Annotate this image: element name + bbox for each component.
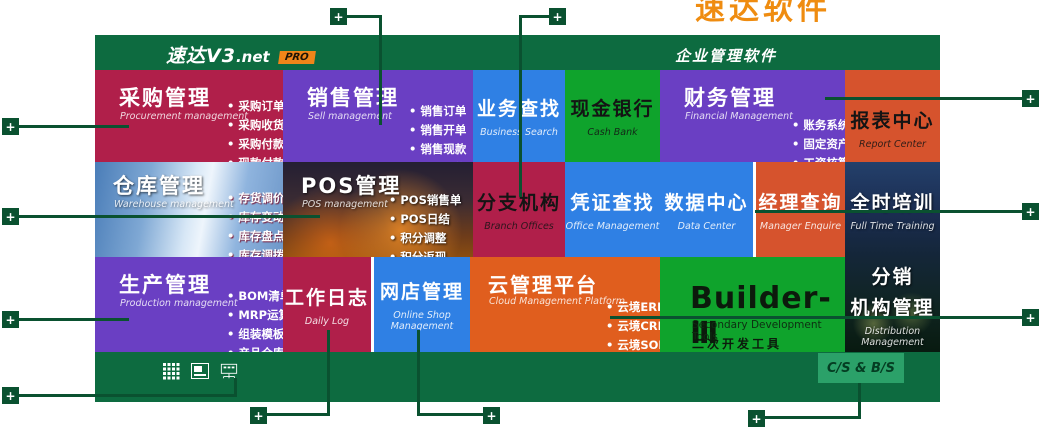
annotation-line (267, 413, 329, 416)
bullet-list: POS销售单 POS日结 积分调整 积分返现 (389, 191, 461, 257)
tile-subtitle: Data Center (678, 221, 736, 232)
tile-title: 生产管理 (119, 269, 211, 299)
bullet-item: 云境SOHO (606, 336, 660, 352)
bullet-item: 库存调拨 (227, 246, 283, 257)
bullet-item: 现款付款 (227, 154, 283, 162)
tile-title: 现金银行 (570, 94, 654, 121)
tile-subtitle: Full Time Training (850, 221, 934, 232)
tile-title: 仓库管理 (113, 170, 205, 200)
plus-marker[interactable]: + (1022, 90, 1039, 107)
plus-marker[interactable]: + (748, 410, 765, 427)
tile-title: 工作日志 (285, 283, 369, 310)
tile-title: 财务管理 (684, 82, 776, 112)
annotation-line (19, 215, 320, 218)
tile-title: POS管理 (301, 170, 401, 200)
app-screenshot: 速达软件 速达V3.netPRO 企业管理软件 采购管理 Procurement… (0, 0, 1039, 447)
annotation-line (610, 316, 1022, 319)
annotation-line (755, 210, 1022, 213)
tile-subtitle: Distribution Management (845, 326, 940, 348)
bullet-item: POS销售单 (389, 191, 461, 210)
bullet-item: 工资核算 (792, 154, 845, 162)
cs-bs-label: C/S & B/S (827, 361, 895, 376)
tile-subtitle: Online Shop Management (374, 310, 470, 332)
tile-subtitle: Warehouse management (114, 199, 234, 210)
tile-sales[interactable]: 销售管理 Sell management 销售订单 销售开单 销售现款 现款销售 (283, 70, 473, 162)
annotation-line (419, 413, 485, 416)
plus-icon: + (552, 11, 562, 23)
plus-icon: + (1025, 93, 1035, 105)
bullet-item: MRP运算 (227, 306, 283, 325)
tile-subtitle: Cash Bank (587, 127, 637, 138)
bullet-item: 积分返现 (389, 248, 461, 257)
plus-marker[interactable]: + (2, 118, 19, 135)
bullet-item: 采购订单 (227, 97, 283, 116)
annotation-line (519, 15, 522, 197)
tile-builder[interactable]: Builder-Ⅲ Secondary Development Tools 二次… (660, 257, 845, 352)
bullet-item: 云境CRM (606, 317, 660, 336)
tile-title-line1: 分销 (871, 262, 913, 289)
tile-subtitle-cn: 二次开发工具 (692, 335, 782, 352)
tile-subtitle: Report Center (859, 139, 926, 150)
bullet-list: 采购订单 采购收货 采购付款 现款付款 (227, 97, 283, 162)
plus-icon: + (253, 410, 263, 422)
annotation-line (765, 416, 860, 419)
logo-suffix: .net (236, 48, 270, 66)
apps-grid-icon[interactable] (162, 362, 180, 380)
product-title: 企业管理软件 (675, 45, 777, 66)
plus-icon: + (5, 211, 15, 223)
annotation-line (825, 97, 1022, 100)
plus-marker[interactable]: + (483, 407, 500, 424)
tile-warehouse[interactable]: 仓库管理 Warehouse management 存货调价 库存变动 库存盘点… (95, 162, 283, 257)
annotation-line (19, 318, 129, 321)
image-window-icon[interactable] (191, 362, 209, 380)
plus-icon: + (5, 121, 15, 133)
bullet-item: 固定资产 (792, 135, 845, 154)
app-logo: 速达V3.netPRO (166, 41, 314, 68)
bullet-list: 销售订单 销售开单 销售现款 现款销售 (409, 102, 466, 162)
plus-marker[interactable]: + (1022, 203, 1039, 220)
tile-subtitle: Office Management (566, 221, 660, 232)
plus-icon: + (751, 413, 761, 425)
plus-icon: + (5, 390, 15, 402)
tile-distribution[interactable]: 分销 机构管理 Distribution Management (845, 257, 940, 352)
plus-marker[interactable]: + (1022, 309, 1039, 326)
pro-badge: PRO (278, 51, 315, 64)
plus-marker[interactable]: + (549, 8, 566, 25)
tile-online-shop[interactable]: 网店管理 Online Shop Management (374, 257, 470, 352)
plus-marker[interactable]: + (2, 311, 19, 328)
bullet-item: 库存盘点 (227, 227, 283, 246)
bullet-item: 采购收货 (227, 116, 283, 135)
tile-title: 云管理平台 (488, 269, 598, 298)
bullet-item: 产品仓库 (227, 344, 283, 352)
tile-report-center[interactable]: 报表中心 Report Center (845, 70, 940, 162)
tile-title: 网店管理 (380, 277, 464, 304)
tile-voucher-search[interactable]: 凭证查找 Office Management (565, 162, 660, 257)
annotation-line (521, 15, 551, 18)
tile-title: 报表中心 (850, 106, 934, 133)
bullet-list: 云境ERP 云境CRM 云境SOHO (606, 298, 660, 352)
annotation-line (417, 330, 420, 416)
tile-title: 采购管理 (119, 82, 211, 112)
tile-title: 凭证查找 (570, 188, 654, 215)
bullet-item: POS日结 (389, 210, 461, 229)
bullet-item: 采购付款 (227, 135, 283, 154)
bullet-item: 销售订单 (409, 102, 466, 121)
plus-marker[interactable]: + (2, 208, 19, 225)
tile-finance[interactable]: 财务管理 Financial Management 账务系统 固定资产 工资核算 (660, 70, 845, 162)
annotation-line (19, 125, 129, 128)
plus-marker[interactable]: + (250, 407, 267, 424)
bullet-list: 账务系统 固定资产 工资核算 (792, 116, 845, 162)
tile-subtitle: Production management (120, 298, 238, 309)
footer-icons (162, 362, 238, 380)
plus-icon: + (333, 11, 343, 23)
annotation-line (19, 394, 237, 397)
annotation-line (346, 15, 382, 18)
tile-cloud-platform[interactable]: 云管理平台 Cloud Management Platform 云境ERP 云境… (470, 257, 660, 352)
logo-text: 速达V3 (166, 45, 236, 67)
plus-marker[interactable]: + (2, 387, 19, 404)
tile-title: 销售管理 (307, 82, 399, 112)
tile-data-center[interactable]: 数据中心 Data Center (660, 162, 753, 257)
annotation-line (379, 15, 382, 125)
tile-subtitle: Manager Enquire (760, 221, 841, 232)
cs-bs-badge[interactable]: C/S & B/S (818, 353, 904, 383)
tile-subtitle: Cloud Management Platform (489, 296, 625, 307)
annotation-line (327, 330, 330, 416)
tile-procurement[interactable]: 采购管理 Procurement management 采购订单 采购收货 采购… (95, 70, 283, 162)
bullet-list: BOM清单 MRP运算 组装模板 产品仓库 (227, 287, 283, 352)
bullet-item: 存货调价 (227, 189, 283, 208)
bullet-item: 销售开单 (409, 121, 466, 140)
bullet-item: 销售现款 (409, 140, 466, 159)
annotation-line (858, 383, 861, 419)
annotation-line (234, 378, 237, 397)
bullet-item: 账务系统 (792, 116, 845, 135)
plus-marker[interactable]: + (330, 8, 347, 25)
tile-subtitle: Daily Log (305, 316, 349, 327)
bullet-item: 积分调整 (389, 229, 461, 248)
banner-text: 速达软件 (695, 0, 831, 22)
clipped-banner: 速达软件 (695, 0, 885, 22)
tile-title: 数据中心 (664, 188, 748, 215)
plus-icon: + (486, 410, 496, 422)
tile-subtitle: Financial Management (685, 111, 793, 122)
plus-icon: + (1025, 206, 1035, 218)
plus-icon: + (5, 314, 15, 326)
tile-production[interactable]: 生产管理 Production management BOM清单 MRP运算 组… (95, 257, 283, 352)
bullet-item: BOM清单 (227, 287, 283, 306)
bullet-item: 云境ERP (606, 298, 660, 317)
plus-icon: + (1025, 312, 1035, 324)
bullet-item: 组装模板 (227, 325, 283, 344)
tile-subtitle: POS management (302, 199, 388, 210)
bullet-list: 存货调价 库存变动 库存盘点 库存调拨 (227, 189, 283, 257)
tile-subtitle: Branch Offices (484, 221, 554, 232)
tile-pos[interactable]: POS管理 POS management POS销售单 POS日结 积分调整 积… (283, 162, 473, 257)
tile-cash-bank[interactable]: 现金银行 Cash Bank (565, 70, 660, 162)
